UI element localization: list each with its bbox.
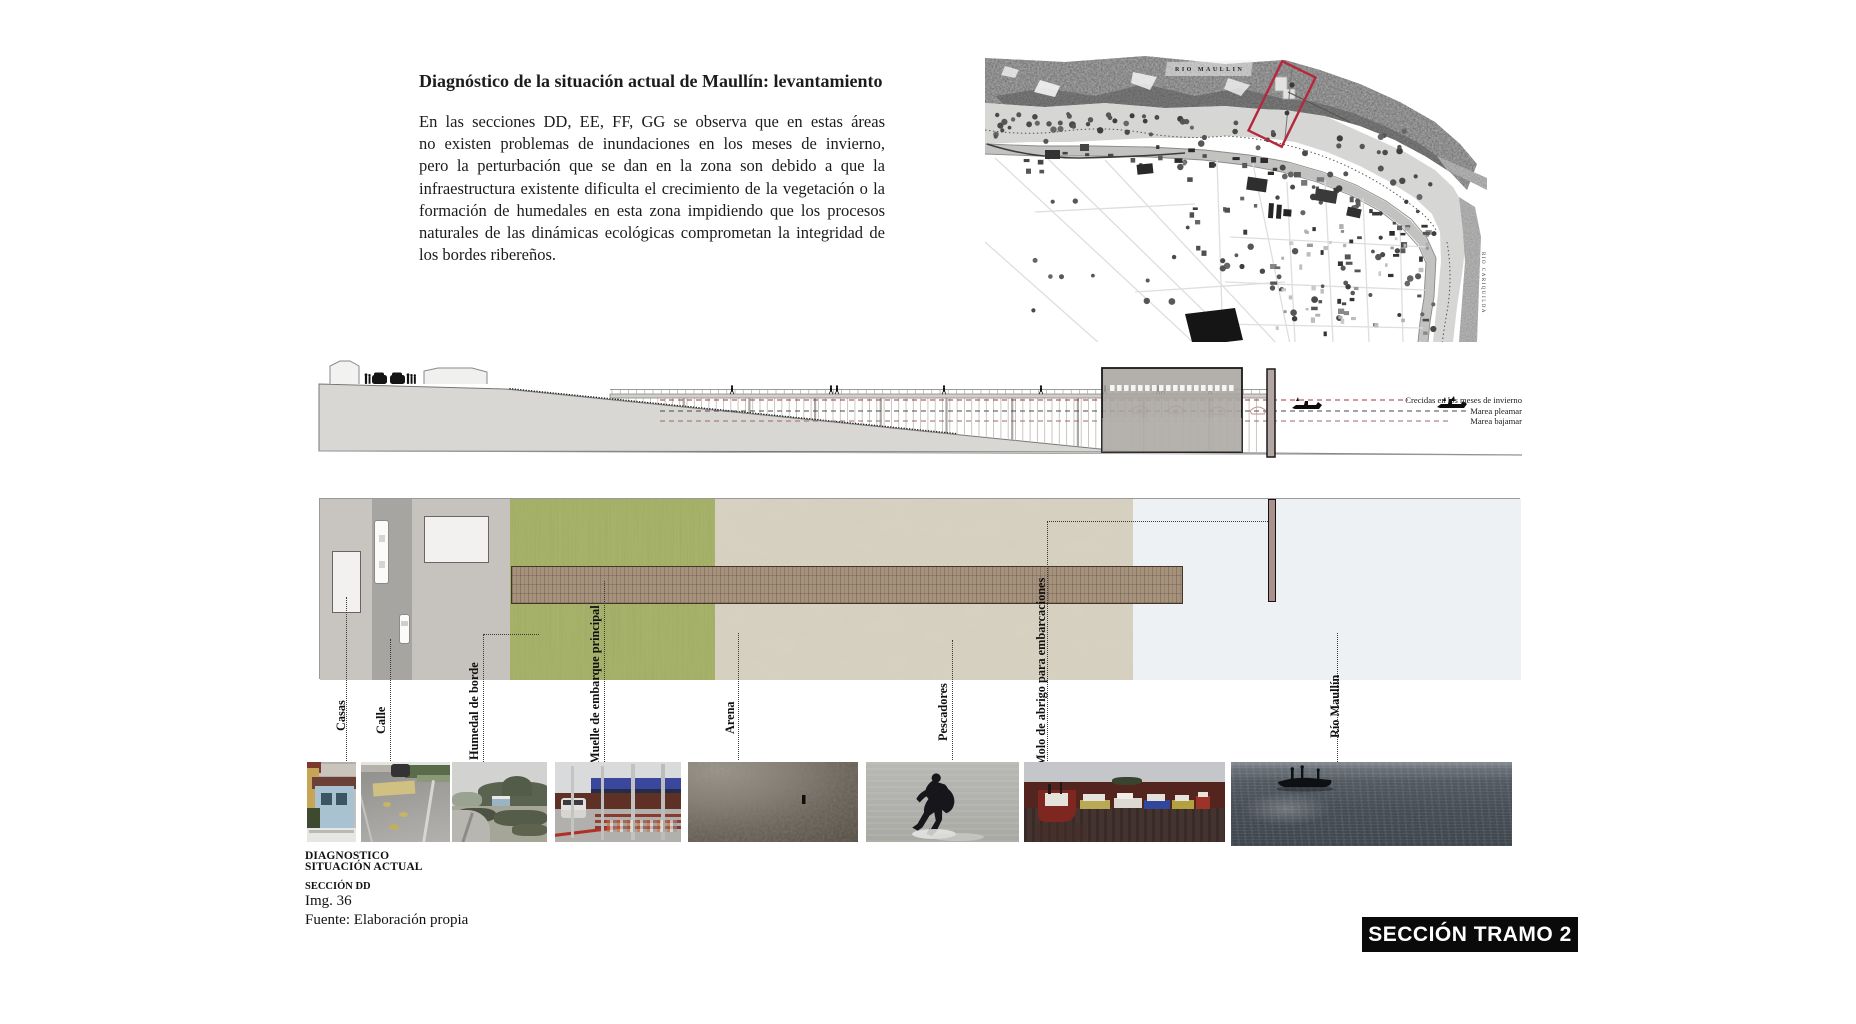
svg-text:RIO MAULLIN: RIO MAULLIN	[1175, 67, 1244, 73]
svg-text:Marea pleamar: Marea pleamar	[1470, 406, 1522, 416]
svg-text:RIO CARIQUILDA: RIO CARIQUILDA	[1480, 252, 1485, 314]
svg-text:Marea bajamar: Marea bajamar	[1470, 416, 1522, 426]
svg-text:Crecidas en los meses de invie: Crecidas en los meses de invierno	[1405, 395, 1522, 405]
